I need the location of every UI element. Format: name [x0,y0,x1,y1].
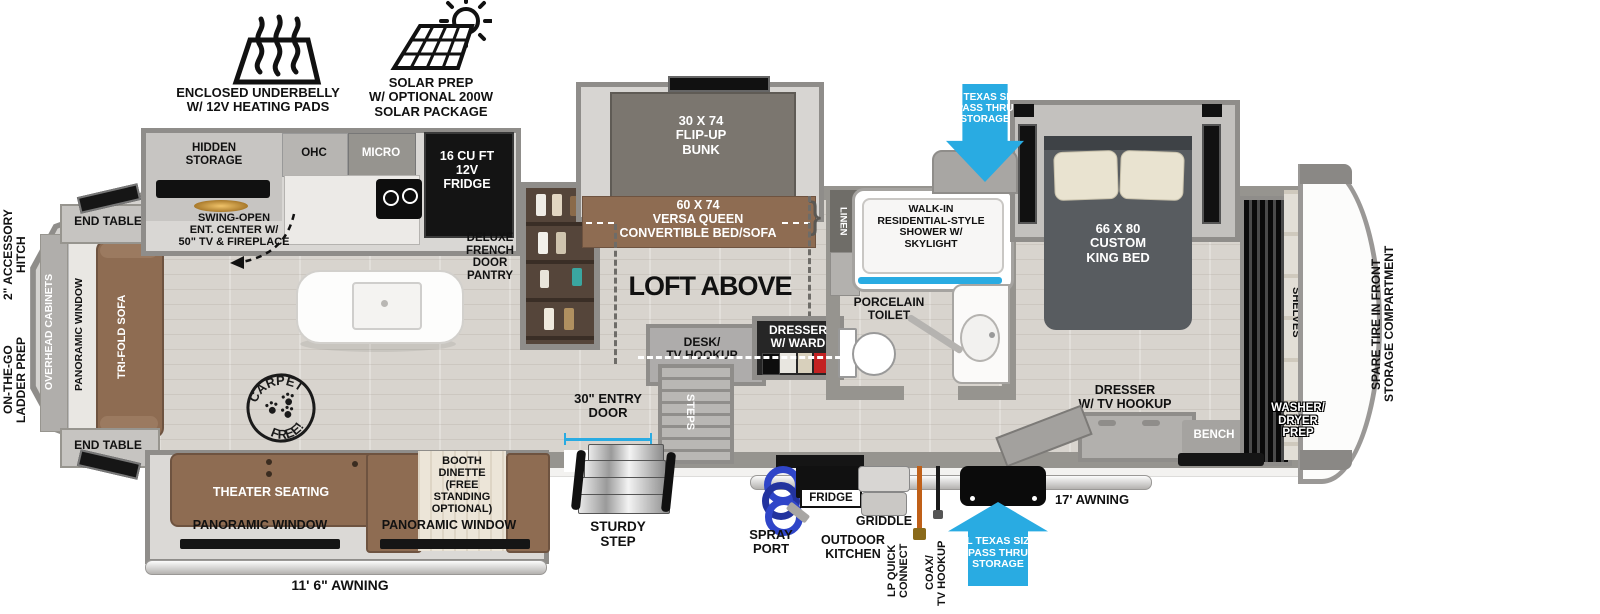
king-bed-label: 66 X 80 CUSTOM KING BED [1058,222,1178,265]
griddle-label: GRIDDLE [844,515,924,529]
lp-hose [917,466,922,530]
versa-queen-label: 60 X 74 VERSA QUEEN CONVERTIBLE BED/SOFA [586,199,810,240]
versa-dash-left [586,222,614,224]
front-cap-top [1300,164,1352,184]
burner-left [383,190,399,206]
heating-pads-icon [212,2,344,86]
coax-connector [933,510,943,519]
paw-prints-icon [264,391,300,422]
coax-cable [936,466,940,514]
loft-dash-front [638,356,850,359]
bench-label: BENCH [1184,429,1244,442]
accessory-hitch-label: 2" ACCESSORY HITCH [2,192,28,318]
bedroom-window-right [1202,124,1221,224]
ladder-prep-label: ON-THE-GO LADDER PREP [2,322,28,438]
panoramic-window-left-label: PANORAMIC WINDOW [178,519,342,533]
pillow-right [1119,150,1185,201]
sturdy-step-label: STURDY STEP [566,520,670,550]
spray-port-coil [762,466,796,526]
flip-up-bunk-label: 30 X 74 FLIP-UP BUNK [640,114,762,157]
interior-steps-label: STEPS [684,378,696,446]
bedroom-window-left [1018,124,1037,224]
entry-door-dim-line [564,438,652,441]
micro-label: MICRO [350,147,412,160]
griddle-bottom [861,492,907,516]
linen-label: LINEN [837,196,847,246]
overhead-cabinets-label: OVERHEAD CABINETS [44,240,56,424]
pass-thru-top-label: XL TEXAS SIZE PASS THRU STORAGE [948,92,1022,125]
bunk-slide-window [668,76,770,92]
shower-label: WALK-IN RESIDENTIAL-STYLE SHOWER W/ SKYL… [860,204,1002,250]
hidden-storage-label: HIDDEN STORAGE [156,142,272,167]
bath-wall-bottom-right [958,386,1016,400]
bath-wall-bottom-left [826,386,904,400]
booth-bench-left [366,453,422,553]
dresser-handle-right [1142,420,1160,426]
rear-panoramic-window-label: PANORAMIC WINDOW [74,244,86,426]
booth-bench-right [506,453,550,553]
ohc-label: OHC [284,147,344,160]
theater-seating-label: THEATER SEATING [200,486,342,500]
front-cap-bottom [1300,450,1352,470]
theater-window-strip-right [380,539,530,549]
spray-port-label: SPRAY PORT [734,528,808,557]
coax-tv-label: COAX/ TV HOOKUP [924,534,948,612]
lp-quick-connect-label: LP QUICK CONNECT [886,532,910,610]
pass-thru-door-dot-left [970,496,975,501]
theater-cupholder-1 [266,459,272,465]
awning-11-6-label: 11' 6" AWNING [268,578,412,593]
king-bed-headboard [1044,136,1192,150]
underbelly-label: ENCLOSED UNDERBELLY W/ 12V HEATING PADS [158,86,358,115]
outdoor-fridge-label: FRIDGE [800,488,862,508]
awning-17-label: 17' AWNING [1040,493,1144,507]
booth-dinette-label: BOOTH DINETTE (FREE STANDING OPTIONAL) [420,455,504,515]
bedroom-window-topright [1202,104,1222,117]
spare-tire-label: SPARE TIRE IN FRONT STORAGE COMPARTMENT [1370,204,1396,444]
end-table-bottom-label: END TABLE [62,439,154,452]
theater-cupholder-3 [352,461,358,467]
entry-door-dim-tick-left [564,433,566,445]
swing-open-arrow [224,206,302,272]
solar-prep-label: SOLAR PREP W/ OPTIONAL 200W SOLAR PACKAG… [346,76,516,119]
toilet-bowl [852,332,896,376]
island-faucet [381,300,388,307]
pass-thru-door-dot-right [1032,496,1037,501]
bench-window-strip [1178,453,1264,466]
tri-fold-sofa [96,240,164,438]
panoramic-window-right-label: PANORAMIC WINDOW [368,519,530,533]
dresser-ward-label: DRESSER W/ WARD [758,324,838,350]
griddle-top [858,466,910,492]
pillow-left [1053,150,1119,201]
shower-glass-door [858,277,1002,284]
fridge-16cuft-label: 16 CU FT 12V FRIDGE [426,150,508,191]
washer-dryer-label: WASHER/ DRYER PREP [1250,402,1346,440]
island-sink [352,282,422,330]
pantry-label: DELUXE FRENCH DOOR PANTRY [452,232,528,283]
tri-fold-sofa-label: TRI-FOLD SOFA [116,262,128,412]
toilet-label: PORCELAIN TOILET [836,296,942,322]
sturdy-step-tread4 [578,494,670,514]
entry-door-label: 30" ENTRY DOOR [558,392,658,421]
solar-prep-icon [386,0,492,78]
dresser-handle-left [1098,420,1116,426]
vanity-sink [960,314,1000,362]
awning-bar-11-6 [145,560,547,575]
burner-right [402,188,418,204]
rv-floorplan: ENCLOSED UNDERBELLY W/ 12V HEATING PADS … [0,0,1600,614]
vanity-faucet [989,332,995,338]
loft-above-label: LOFT ABOVE [596,272,824,302]
theater-cupholder-2 [266,471,272,477]
pass-thru-bottom-label: XL TEXAS SIZE PASS THRU STORAGE [956,536,1040,571]
theater-window-strip-left [180,539,340,549]
tv-bar [156,180,270,198]
